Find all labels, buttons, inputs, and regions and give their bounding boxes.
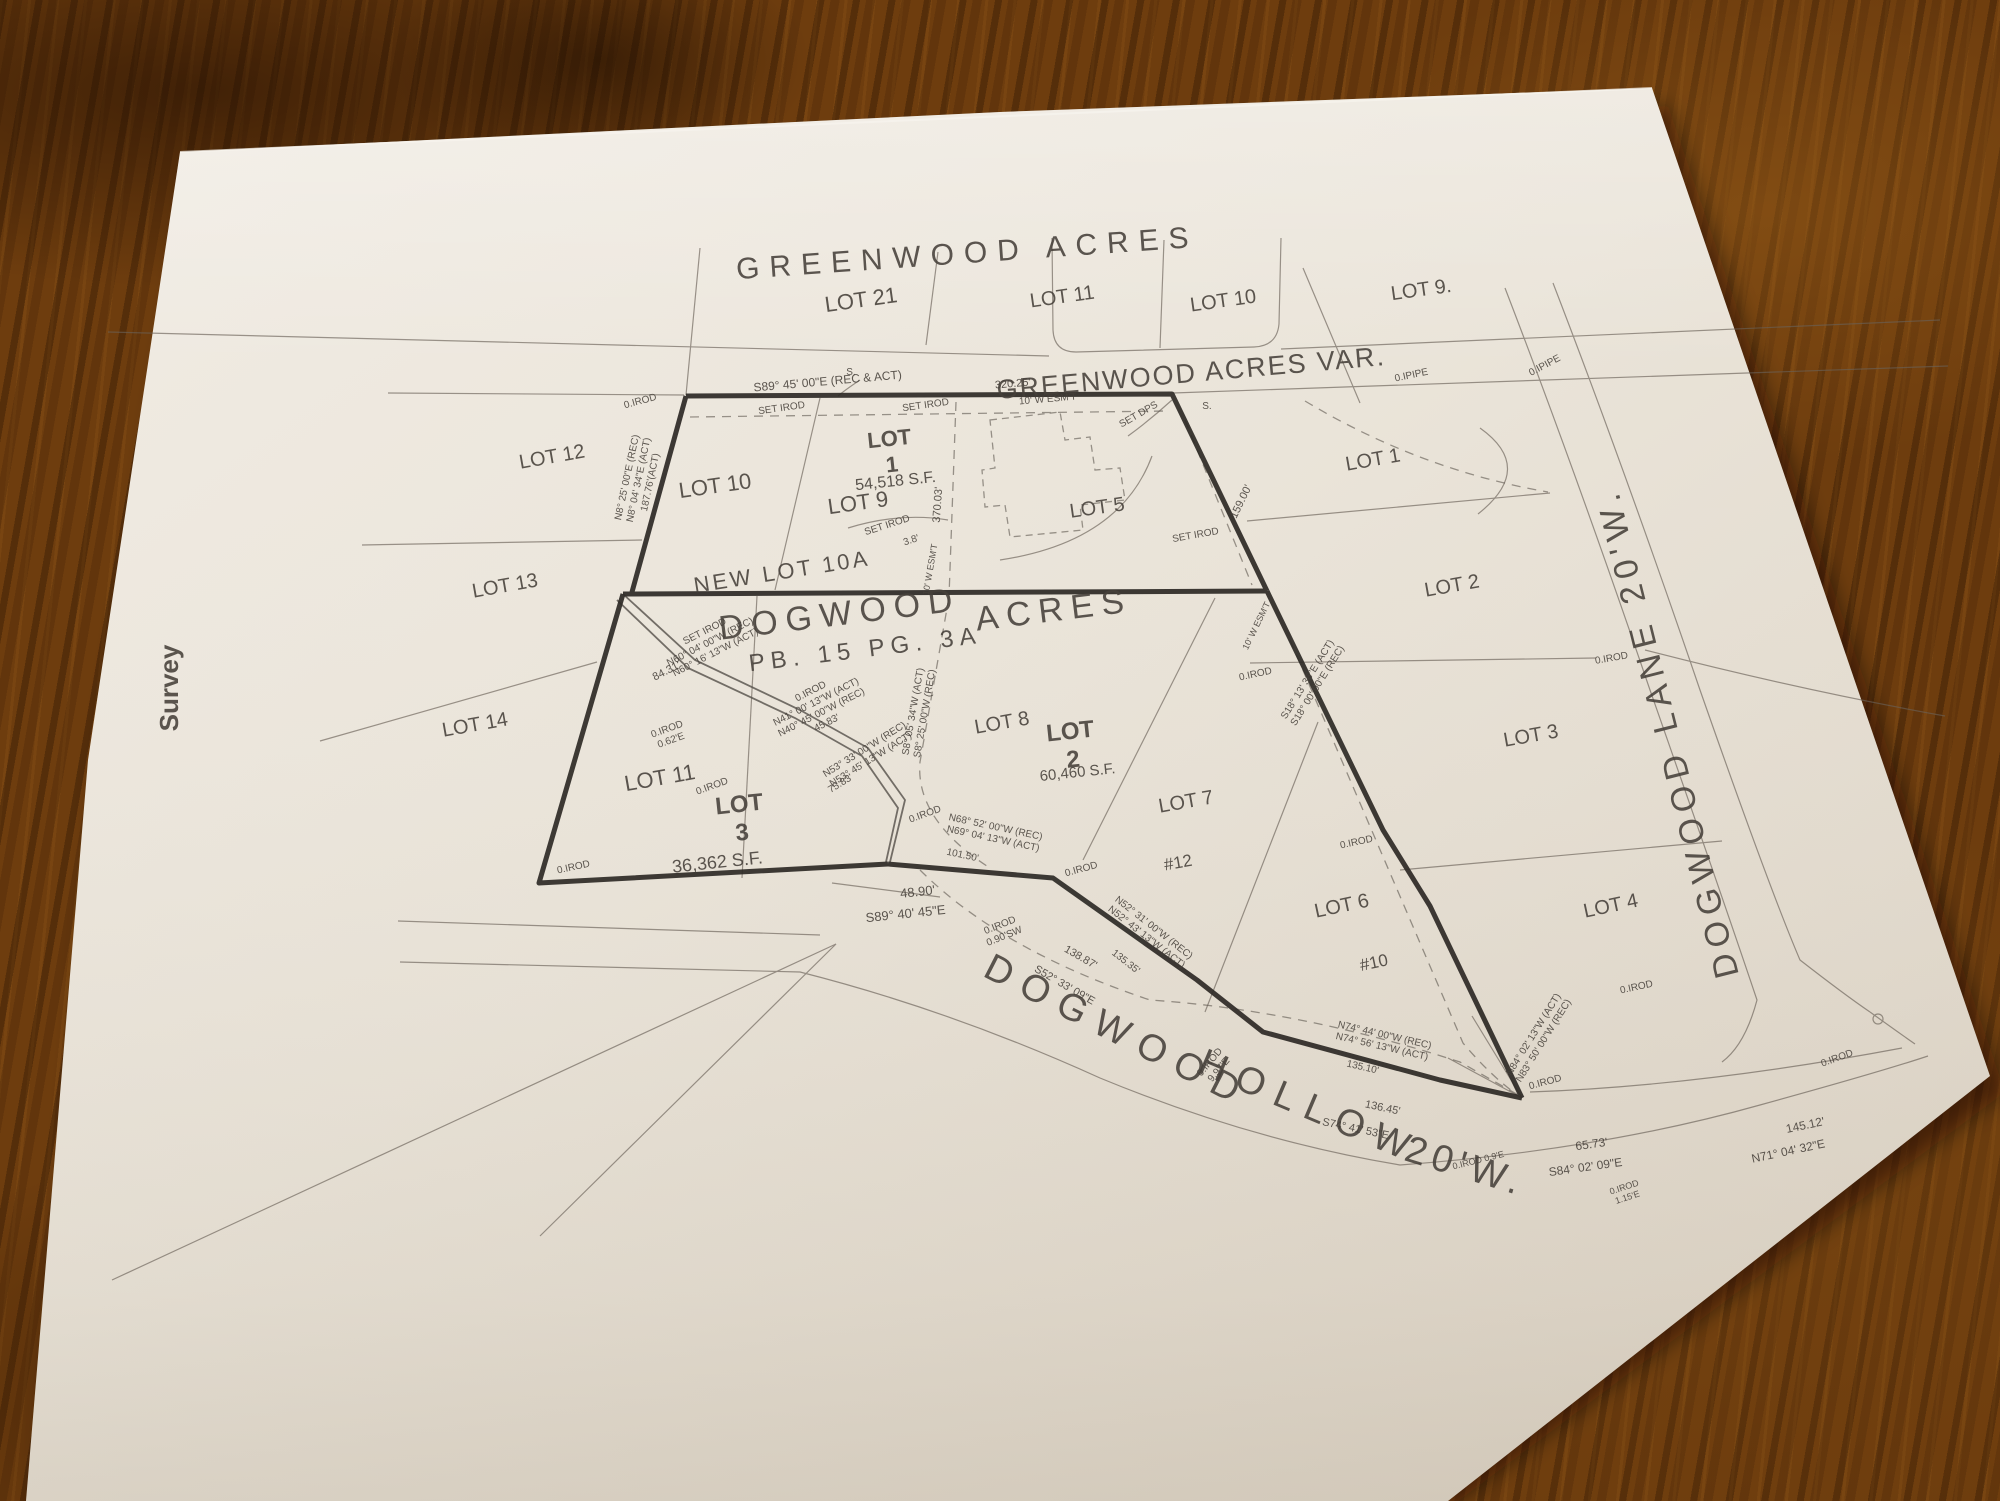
marker-s-1: S. <box>846 367 855 378</box>
label-survey-tab: Survey <box>154 644 184 731</box>
photo-of-survey-plat: GREENWOOD ACRESGREENWOOD ACRES VAR.DOGWO… <box>0 0 2000 1501</box>
survey-plat-sheet: GREENWOOD ACRESGREENWOOD ACRES VAR.DOGWO… <box>0 0 2000 1501</box>
marker-s-2: S. <box>1202 401 1211 412</box>
dim-370-03: 370.03' <box>931 487 945 523</box>
